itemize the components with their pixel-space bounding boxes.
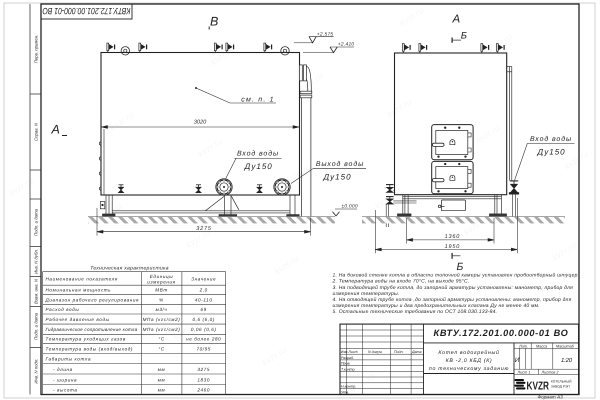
- svg-text:А: А: [51, 123, 60, 137]
- svg-text:ЗАВОД РЭП: ЗАВОД РЭП: [551, 385, 570, 389]
- svg-text:КВТУ.172.201.00.000-01 ВО: КВТУ.172.201.00.000-01 ВО: [434, 328, 569, 338]
- svg-text:Рабочее давление воды: Рабочее давление воды: [46, 317, 110, 322]
- svg-text:не более 280: не более 280: [186, 337, 221, 342]
- svg-text:Перв. примен.: Перв. примен.: [34, 35, 39, 64]
- svg-text:Дата: Дата: [411, 350, 421, 354]
- svg-text:Номинальная мощность: Номинальная мощность: [46, 288, 112, 293]
- svg-text:измерения температуры и два пр: измерения температуры и два предохраните…: [333, 303, 540, 309]
- svg-text:N докум.: N докум.: [368, 350, 383, 354]
- svg-text:Взам. инв. N: Взам. инв. N: [34, 278, 39, 304]
- svg-text:Выход воды: Выход воды: [316, 160, 364, 168]
- svg-text:2,0: 2,0: [199, 288, 208, 293]
- svg-text:2. Температура воды на входе: 2. Температура воды на входе 70°С, на вы…: [332, 279, 470, 285]
- svg-text:°С: °С: [158, 347, 164, 352]
- svg-text:см. п. 1: см. п. 1: [241, 96, 274, 103]
- svg-text:3020: 3020: [194, 120, 207, 126]
- svg-text:измерения температуры.: измерения температуры.: [333, 291, 400, 297]
- svg-text:70/95: 70/95: [196, 347, 211, 352]
- svg-text:Значение: Значение: [191, 277, 216, 282]
- svg-text:Вход воды: Вход воды: [530, 135, 572, 143]
- svg-text:Подп.: Подп.: [394, 350, 404, 354]
- svg-text:КОТЕЛЬНЫЙ: КОТЕЛЬНЫЙ: [551, 380, 572, 384]
- svg-text:- длина: - длина: [53, 367, 73, 372]
- svg-text:Б: Б: [461, 30, 467, 41]
- svg-text:Лист 1: Лист 1: [517, 370, 531, 374]
- svg-text:0,06 (0,6): 0,06 (0,6): [191, 327, 217, 332]
- svg-text:Единицы: Единицы: [150, 274, 173, 279]
- svg-text:мм: мм: [158, 377, 166, 382]
- svg-text:МПа (кгс/см2): МПа (кгс/см2): [143, 327, 181, 332]
- svg-text:Инв. N дубл.: Инв. N дубл.: [34, 249, 39, 274]
- svg-text:Б: Б: [457, 261, 464, 273]
- svg-text:5. Остальные технические треб: 5. Остальные технические требования по О…: [333, 309, 498, 315]
- svg-text:Пров.: Пров.: [341, 362, 350, 366]
- svg-text:±0.000: ±0.000: [342, 203, 358, 209]
- svg-text:Разраб.: Разраб.: [341, 356, 354, 360]
- svg-text:м3/ч: м3/ч: [156, 307, 168, 312]
- svg-text:1830: 1830: [197, 377, 210, 382]
- svg-text:Расход воды: Расход воды: [46, 307, 80, 312]
- svg-text:0,6 (6,0): 0,6 (6,0): [192, 317, 215, 322]
- svg-text:Н.контр.: Н.контр.: [341, 385, 356, 389]
- svg-text:Габариты котла: Габариты котла: [46, 357, 92, 362]
- svg-text:40-110: 40-110: [195, 297, 213, 302]
- svg-text:Листов 2: Листов 2: [541, 370, 560, 374]
- svg-text:МВт: МВт: [155, 288, 168, 293]
- svg-text:KVZR: KVZR: [527, 381, 550, 393]
- svg-text:Ду150: Ду150: [244, 162, 273, 171]
- svg-text:Подп. и дата: Подп. и дата: [34, 208, 39, 236]
- svg-text:Т.контр.: Т.контр.: [341, 367, 356, 371]
- svg-text:3275: 3275: [197, 367, 210, 372]
- svg-text:измерения: измерения: [147, 279, 175, 284]
- svg-text:1:20: 1:20: [561, 357, 573, 364]
- svg-text:Лит.: Лит.: [518, 344, 528, 348]
- svg-text:- высота: - высота: [53, 388, 78, 393]
- svg-text:3275: 3275: [196, 226, 212, 232]
- svg-text:Ду150: Ду150: [537, 148, 566, 157]
- svg-text:2460: 2460: [196, 388, 210, 393]
- svg-text:Изм.Лист: Изм.Лист: [341, 350, 358, 354]
- svg-text:1360: 1360: [445, 234, 461, 240]
- svg-text:Утв.: Утв.: [341, 390, 349, 394]
- svg-text:Вход воды: Вход воды: [237, 150, 279, 158]
- svg-text:по техническому заданию: по техническому заданию: [429, 366, 509, 372]
- svg-text:Техническая характеристика: Техническая характеристика: [90, 266, 169, 272]
- svg-text:4. На отводящей трубе котла ,: 4. На отводящей трубе котла ,до запорной…: [333, 297, 572, 303]
- svg-text:КВ -2,0 КБД (К): КВ -2,0 КБД (К): [446, 358, 493, 364]
- svg-text:мм: мм: [158, 367, 166, 372]
- svg-text:Инв. N подл.: Инв. N подл.: [34, 358, 39, 383]
- svg-text:Температура воды (вход/выход): Температура воды (вход/выход): [46, 347, 134, 352]
- svg-text:°С: °С: [158, 337, 164, 342]
- svg-text:Масштаб: Масштаб: [556, 344, 575, 348]
- svg-text:МПа (кгс/см2): МПа (кгс/см2): [143, 317, 181, 322]
- svg-text:А: А: [452, 14, 461, 26]
- svg-text:Температура уходящих газов: Температура уходящих газов: [46, 337, 126, 342]
- svg-text:В: В: [210, 15, 218, 29]
- svg-text:Диапазон рабочего регулировани: Диапазон рабочего регулирования: [45, 297, 140, 302]
- svg-text:1. На боковой стенке котла в: 1. На боковой стенке котла в области топ…: [333, 273, 578, 279]
- svg-text:Масса: Масса: [536, 344, 547, 348]
- svg-text:Наименование показателя: Наименование показателя: [46, 277, 118, 282]
- svg-text:Подп. и дата: Подп. и дата: [34, 312, 39, 340]
- svg-text:КВТУ.172.201.00.000-01 ВО: КВТУ.172.201.00.000-01 ВО: [43, 6, 131, 16]
- svg-text:- ширина: - ширина: [53, 377, 77, 382]
- svg-text:69: 69: [201, 307, 207, 312]
- svg-text:%: %: [159, 297, 164, 302]
- svg-text:Котел водогрейный: Котел водогрейный: [438, 350, 499, 356]
- svg-text:мм: мм: [158, 388, 166, 393]
- svg-text:Справ. N: Справ. N: [34, 122, 39, 141]
- svg-text:Гидравлическое сопротивление к: Гидравлическое сопротивление котла: [46, 327, 138, 332]
- svg-text:И: И: [515, 357, 520, 364]
- svg-text:Ду150: Ду150: [322, 173, 351, 182]
- svg-text:Формат А3: Формат А3: [538, 395, 564, 400]
- svg-text:1950: 1950: [445, 244, 461, 250]
